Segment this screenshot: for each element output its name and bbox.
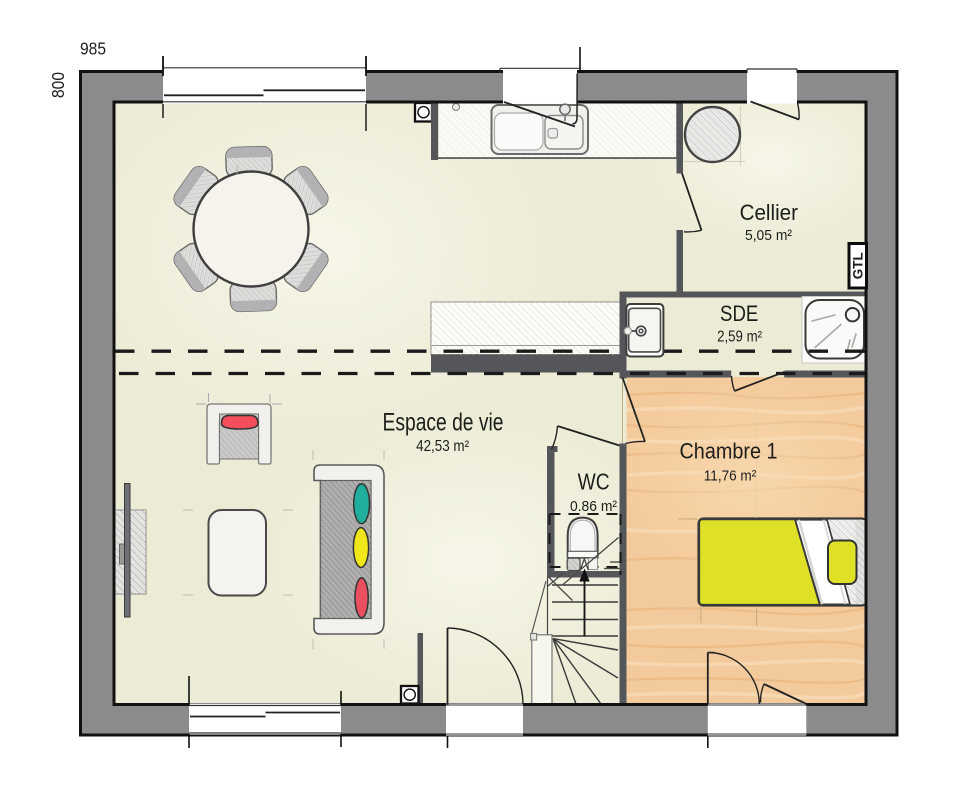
svg-text:42,53 m²: 42,53 m² [416,438,469,455]
svg-text:5,05 m²: 5,05 m² [745,227,792,244]
svg-text:985: 985 [80,39,106,59]
svg-text:SDE: SDE [720,301,758,326]
svg-text:0.86 m²: 0.86 m² [570,498,617,515]
svg-text:Cellier: Cellier [740,200,799,225]
svg-text:11,76 m²: 11,76 m² [704,467,757,484]
svg-text:800: 800 [48,72,68,98]
svg-text:Chambre 1: Chambre 1 [680,438,778,463]
svg-text:WC: WC [578,469,610,495]
svg-text:2,59 m²: 2,59 m² [717,329,762,346]
svg-text:GTL: GTL [851,252,866,279]
svg-text:Espace de vie: Espace de vie [383,409,504,437]
